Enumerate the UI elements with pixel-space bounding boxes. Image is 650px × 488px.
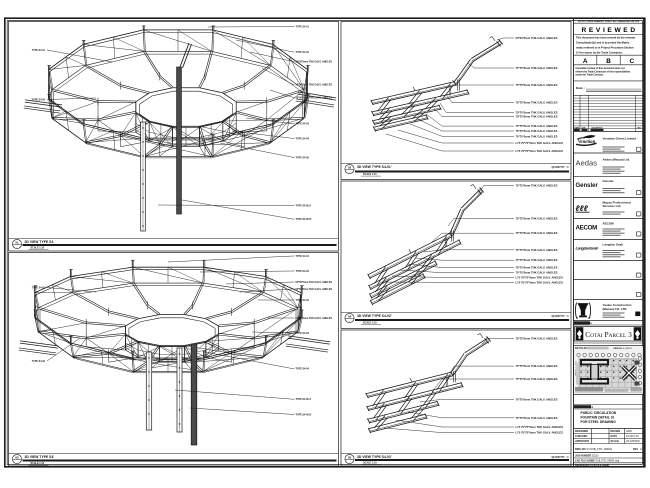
svg-text:SYSUB_FTD_SR004.dwg: SYSUB_FTD_SR004.dwg (593, 460, 620, 462)
svg-text:01: 01 (15, 240, 19, 244)
svg-text:Date :: Date : (576, 86, 585, 90)
svg-text:TYPE S4-01: TYPE S4-01 (32, 49, 46, 52)
svg-text:under the Trade Contract.: under the Trade Contract. (576, 74, 604, 77)
svg-text:GMO: GMO (626, 430, 632, 433)
svg-text:LangdonSeah: LangdonSeah (576, 246, 600, 251)
svg-text:02: 02 (15, 455, 19, 459)
svg-text:75*75*5mm THK GALV. ANGLES: 75*75*5mm THK GALV. ANGLES (516, 183, 558, 187)
svg-text:JOB NUMBER: JOB NUMBER (575, 454, 591, 457)
svg-text:FOUNTAIN DETAIL 01: FOUNTAIN DETAIL 01 (581, 416, 615, 420)
svg-text:3D VIEW TYPE S4: 3D VIEW TYPE S4 (25, 240, 54, 244)
svg-text:75*75*5mm THK GALV. ANGLES: 75*75*5mm THK GALV. ANGLES (516, 337, 558, 341)
svg-text:50*50*5mm THK GALV. ANGLES: 50*50*5mm THK GALV. ANGLES (516, 36, 558, 40)
svg-text:50*50*5mm THK GALV. ANGLES: 50*50*5mm THK GALV. ANGLES (296, 288, 333, 291)
svg-text:3D VIEW TYPE S4-02': 3D VIEW TYPE S4-02' (357, 314, 392, 318)
svg-text:L75 75*75*5mm THK GALV. ANGLES: L75 75*75*5mm THK GALV. ANGLES (516, 276, 564, 280)
svg-text:AECOM: AECOM (603, 222, 615, 226)
svg-text:5.4 for action by the Trade Co: 5.4 for action by the Trade Contractor. (576, 51, 623, 55)
svg-text:13-NOV-15: 13-NOV-15 (626, 435, 639, 438)
svg-text:3D VIEW TYPE S4-01': 3D VIEW TYPE S4-01' (357, 165, 392, 169)
svg-text:Aedas (Macau) Ltd.: Aedas (Macau) Ltd. (603, 158, 631, 162)
svg-text:75*75*5mm THK GALV. ANGLES: 75*75*5mm THK GALV. ANGLES (516, 115, 558, 119)
svg-text:TYPE S4-04: TYPE S4-04 (296, 137, 310, 140)
svg-text:C: C (629, 58, 634, 65)
svg-text:SCALE 1:10: SCALE 1:10 (31, 462, 45, 465)
svg-text:FOR STEEL DRAWING: FOR STEEL DRAWING (581, 420, 617, 424)
svg-text:75*75*5mm THK GALV. ANGLES: 75*75*5mm THK GALV. ANGLES (516, 66, 558, 70)
svg-text:SCALE 1:10: SCALE 1:10 (363, 173, 377, 176)
svg-text:Consultant review of this docu: Consultant review of this document does … (576, 67, 625, 70)
svg-text:75*75*5mm THK GALV. ANGLES: 75*75*5mm THK GALV. ANGLES (516, 377, 558, 381)
svg-text:QUANTITY : 4: QUANTITY : 4 (552, 165, 570, 169)
svg-text:3D VIEW TYPE S4': 3D VIEW TYPE S4' (25, 455, 55, 459)
svg-text:75*75*5mm THK GALV. ANGLES: 75*75*5mm THK GALV. ANGLES (516, 217, 558, 221)
svg-text:A: A (583, 58, 588, 65)
svg-text:KEY PLAN: KEY PLAN (575, 347, 587, 350)
svg-text:A: A (640, 447, 642, 451)
svg-text:SCALE 1:10: SCALE 1:10 (363, 322, 377, 325)
svg-text:Services Ltd.: Services Ltd. (603, 204, 622, 208)
svg-text:status referred to in Project: status referred to in Project Procedure … (576, 46, 634, 50)
svg-text:DRAWN: DRAWN (611, 430, 621, 433)
svg-text:DESIGNED: DESIGNED (575, 430, 588, 433)
svg-text:APPROVED: APPROVED (575, 440, 589, 443)
svg-text:75*75*5mm THK GALV. ANGLES: 75*75*5mm THK GALV. ANGLES (516, 129, 558, 133)
svg-text:75*75*5mm THK GALV. ANGLES: 75*75*5mm THK GALV. ANGLES (516, 124, 558, 128)
svg-text:TYPE S4-02: TYPE S4-02 (296, 51, 310, 54)
svg-text:TYPE S4-05 B: TYPE S4-05 B (296, 413, 312, 416)
svg-text:Langdon Seah: Langdon Seah (603, 243, 624, 247)
svg-text:75*75*5mm THK GALV. ANGLES: 75*75*5mm THK GALV. ANGLES (516, 110, 558, 114)
svg-text:TYPE S4-05 B: TYPE S4-05 B (296, 218, 312, 221)
svg-text:R E V I E W E D: R E V I E W E D (582, 27, 636, 34)
svg-text:Venetian Orient Limited: Venetian Orient Limited (603, 137, 637, 141)
svg-text:TYPE S4-02: TYPE S4-02 (296, 270, 310, 273)
svg-text:50*50*5mm THK GALV. ANGLES: 50*50*5mm THK GALV. ANGLES (296, 84, 333, 87)
svg-text:31520: 31520 (592, 454, 600, 457)
svg-text:75*75*5mm THK GALV. ANGLES: 75*75*5mm THK GALV. ANGLES (516, 271, 558, 275)
svg-text:L75 75*75*5mm THK GALV. ANGLES: L75 75*75*5mm THK GALV. ANGLES (516, 425, 564, 429)
svg-text:DWG NO: DWG NO (575, 448, 586, 451)
svg-text:relieve the Trade Contractor o: relieve the Trade Contractor of the resp… (576, 70, 632, 73)
svg-text:ℓℓℓ: ℓℓℓ (576, 204, 589, 213)
svg-text:B: B (606, 58, 611, 65)
svg-text:SYSUB_FTD_SR004: SYSUB_FTD_SR004 (587, 447, 613, 451)
svg-text:TYPE S4-01: TYPE S4-01 (296, 26, 310, 29)
svg-text:SCALE: SCALE (611, 440, 620, 443)
svg-text:Consultant(s)(s) and is accord: Consultant(s)(s) and is accorded the Mat… (576, 40, 630, 44)
svg-text:TYPE S4-01: TYPE S4-01 (296, 255, 310, 258)
svg-text:L75 75*75*5mm THK GALV. ANGLES: L75 75*75*5mm THK GALV. ANGLES (516, 149, 564, 153)
svg-text:L75 75*75*5mm THK GALV. ANGLES: L75 75*75*5mm THK GALV. ANGLES (516, 431, 564, 435)
svg-text:L75 75*75*5mm THK GALV. ANGLES: L75 75*75*5mm THK GALV. ANGLES (516, 141, 564, 145)
svg-text:TYPE S4-03: TYPE S4-03 (296, 123, 310, 126)
svg-text:04: 04 (348, 314, 352, 318)
svg-text:50*50*5mm THK GALV. ANGLES: 50*50*5mm THK GALV. ANGLES (296, 281, 333, 284)
svg-text:75*75*5mm THK GALV. ANGLES: 75*75*5mm THK GALV. ANGLES (516, 231, 558, 235)
svg-text:DO NOT SCALE DRAWING. VERIFY A: DO NOT SCALE DRAWING. VERIFY ALL DIMENSI… (578, 20, 640, 23)
svg-text:3D VIEW TYPE S4-03': 3D VIEW TYPE S4-03' (357, 455, 392, 459)
svg-text:TYPE S4-04: TYPE S4-04 (296, 368, 310, 371)
svg-text:This document has been revised: This document has been revised by the re… (576, 35, 635, 39)
svg-text:75*75*5mm THK GALV. ANGLES: 75*75*5mm THK GALV. ANGLES (516, 397, 558, 401)
svg-text:TYPE S4-05 A: TYPE S4-05 A (296, 205, 312, 208)
svg-text:TYPE S4-05 A: TYPE S4-05 A (296, 398, 312, 401)
svg-text:SCALE 1:10: SCALE 1:10 (31, 247, 45, 250)
svg-text:Aedas: Aedas (576, 159, 598, 168)
svg-text:TYPE S4-03: TYPE S4-03 (296, 332, 310, 335)
svg-text:AECOM: AECOM (576, 225, 598, 232)
svg-text:75*75*5mm THK GALV. ANGLES: 75*75*5mm THK GALV. ANGLES (516, 364, 558, 368)
svg-text:75*75*5mm THK GALV. ANGLES: 75*75*5mm THK GALV. ANGLES (516, 258, 558, 262)
svg-text:QUANTITY : 4: QUANTITY : 4 (552, 455, 570, 459)
svg-text:Gensler: Gensler (576, 183, 599, 189)
svg-text:Gensler: Gensler (603, 179, 615, 183)
svg-text:75*75*5mm THK GALV. ANGLES: 75*75*5mm THK GALV. ANGLES (516, 248, 558, 252)
svg-text:75*75*5mm THK GALV. ANGLES: 75*75*5mm THK GALV. ANGLES (516, 134, 558, 138)
svg-text:50*50*5mm THK GALV. ANGLES: 50*50*5mm THK GALV. ANGLES (296, 61, 333, 64)
svg-text:TYPE S4-05: TYPE S4-05 (296, 156, 310, 159)
svg-text:SCALE 1:10: SCALE 1:10 (363, 462, 377, 465)
svg-text:REFERENCE CAD FILE NAME: REFERENCE CAD FILE NAME (575, 464, 610, 467)
svg-text:TYPE S4-01: TYPE S4-01 (32, 287, 46, 290)
svg-text:PARCEL 1, LOT 2: PARCEL 1, LOT 2 (614, 347, 633, 350)
svg-text:PUBLIC CIRCULATION: PUBLIC CIRCULATION (581, 411, 617, 415)
svg-text:75*75*5mm THK GALV. ANGLES: 75*75*5mm THK GALV. ANGLES (516, 416, 558, 420)
svg-text:(Macau) CO. LTD.: (Macau) CO. LTD. (603, 307, 628, 311)
svg-text:TYPE S4-02: TYPE S4-02 (296, 299, 310, 302)
svg-text:TYPE S4-02: TYPE S4-02 (32, 99, 46, 102)
svg-text:CAD FILE NAME: CAD FILE NAME (575, 459, 594, 462)
svg-text:03: 03 (348, 165, 352, 169)
svg-text:TYPE S4-02: TYPE S4-02 (32, 360, 46, 363)
svg-text:DATE: DATE (611, 435, 618, 438)
svg-text:CHECKED: CHECKED (575, 435, 588, 438)
svg-text:75*75*5mm THK GALV. ANGLES: 75*75*5mm THK GALV. ANGLES (516, 266, 558, 270)
svg-text:05: 05 (348, 455, 352, 459)
svg-text:REV: REV (633, 448, 638, 451)
svg-text:50*50*5mm THK GALV. ANGLES: 50*50*5mm THK GALV. ANGLES (296, 317, 333, 320)
svg-text:AS SHOWN: AS SHOWN (626, 440, 640, 443)
svg-text:75*75*5mm THK GALV. ANGLES: 75*75*5mm THK GALV. ANGLES (516, 83, 558, 87)
svg-text:QUANTITY : 4: QUANTITY : 4 (552, 314, 570, 318)
svg-text:75*75*5mm THK GALV. ANGLES: 75*75*5mm THK GALV. ANGLES (516, 101, 558, 105)
svg-text:50*50*5mm THK GALV. ANGLES: 50*50*5mm THK GALV. ANGLES (296, 96, 333, 99)
svg-text:L75 75*75*5mm THK GALV. ANGLES: L75 75*75*5mm THK GALV. ANGLES (516, 280, 564, 284)
